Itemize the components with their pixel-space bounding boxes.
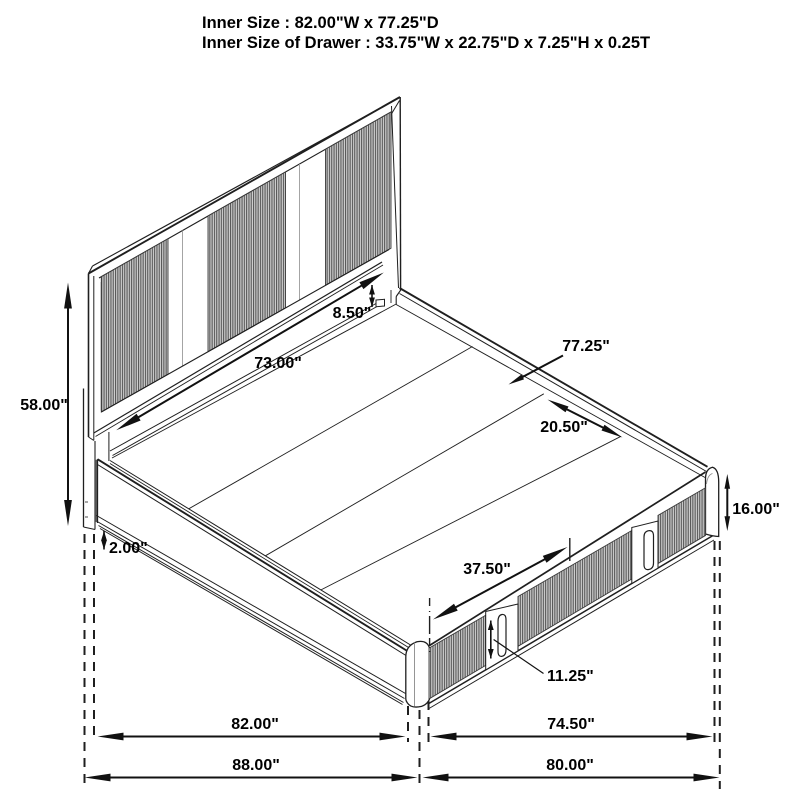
svg-text:74.50": 74.50"	[547, 716, 595, 733]
svg-text:80.00": 80.00"	[546, 757, 594, 774]
svg-text:Inner Size : 82.00"W x 77.25"D: Inner Size : 82.00"W x 77.25"D	[202, 14, 439, 32]
svg-text:8.50": 8.50"	[333, 305, 372, 322]
svg-text:11.25": 11.25"	[547, 668, 594, 685]
svg-text:Inner Size of Drawer : 33.75"W: Inner Size of Drawer : 33.75"W x 22.75"D…	[202, 34, 650, 52]
svg-text:88.00": 88.00"	[232, 757, 280, 774]
svg-text:77.25": 77.25"	[562, 338, 610, 355]
svg-text:20.50": 20.50"	[540, 419, 588, 436]
svg-text:58.00": 58.00"	[20, 397, 68, 414]
svg-text:2.00": 2.00"	[109, 540, 148, 557]
svg-text:82.00": 82.00"	[231, 716, 279, 733]
svg-text:16.00": 16.00"	[732, 501, 780, 518]
svg-text:73.00": 73.00"	[254, 355, 302, 372]
svg-text:37.50": 37.50"	[463, 561, 511, 578]
